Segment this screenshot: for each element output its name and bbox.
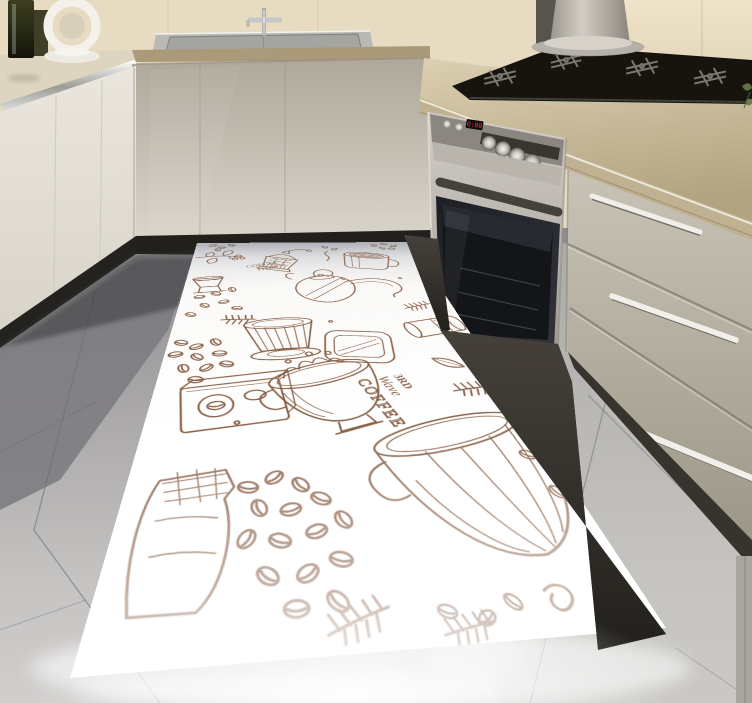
kitchen-scene: 0:00 <box>0 0 752 703</box>
oven-knob-1 <box>482 136 496 150</box>
oven-knob-2 <box>496 142 511 157</box>
bottle-reflection <box>8 74 40 82</box>
oven-knob-small-1 <box>443 120 452 129</box>
hood-flare-top <box>544 36 632 50</box>
bottle-highlight <box>12 4 16 54</box>
right-edge-cabinet-side <box>736 556 752 703</box>
olive-oil-bottle <box>8 0 34 58</box>
oven-knob-small-2 <box>455 123 464 132</box>
